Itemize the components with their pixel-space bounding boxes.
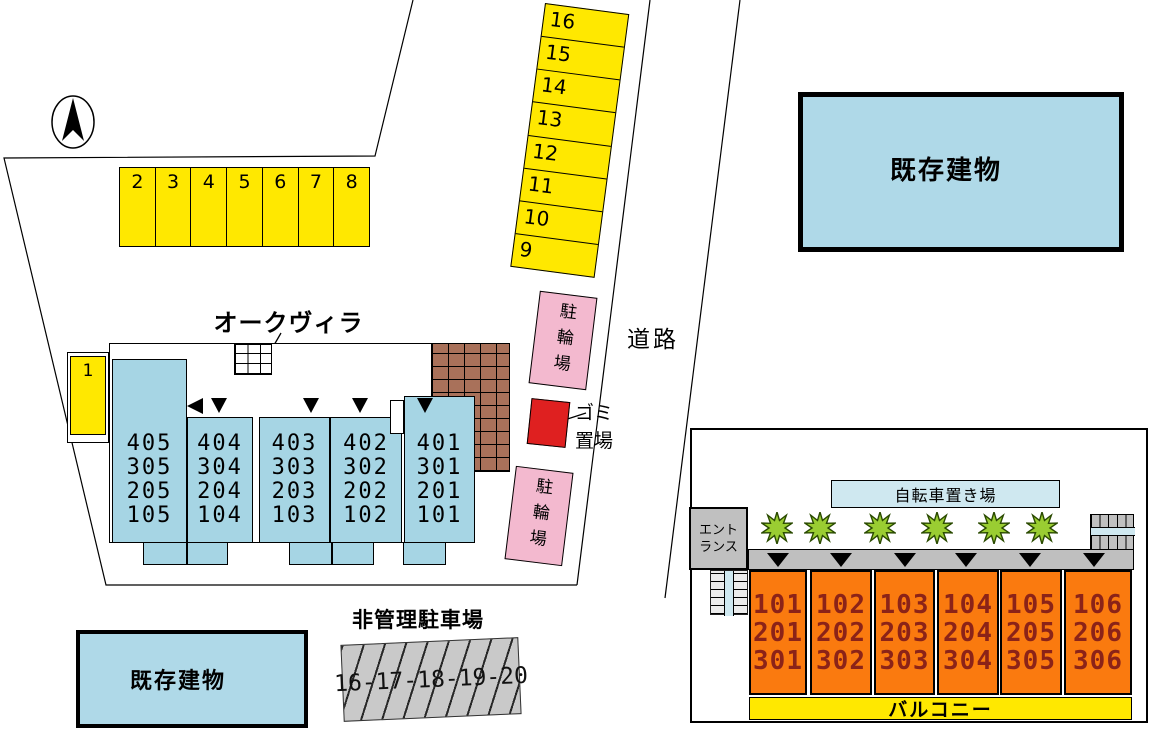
- room-number: 305: [127, 456, 173, 480]
- residence-column-02: 402 302 202 102: [330, 417, 402, 543]
- entrance-box: エント ランス: [689, 507, 748, 570]
- parking-space: 2: [120, 168, 156, 246]
- unit-column-04: 104 204 304: [937, 570, 999, 695]
- unit-number: 204: [943, 619, 993, 647]
- room-number: 404: [197, 432, 243, 456]
- bicycle-parking-bottom: 駐輪場: [504, 466, 573, 566]
- bush-icon: [804, 512, 836, 544]
- room-number: 201: [417, 480, 463, 504]
- unit-number: 306: [1073, 647, 1123, 675]
- unit-column-03: 103 203 303: [874, 570, 935, 695]
- stair-landing: [1091, 527, 1135, 536]
- entrance-arrow-icon: [211, 398, 227, 413]
- entrance-arrow-icon: [352, 398, 368, 413]
- residence-column-04: 404 304 204 104: [187, 417, 253, 543]
- balcony-tab: [187, 542, 228, 565]
- parking-space: 7: [299, 168, 335, 246]
- garbage-area-box: [527, 398, 571, 448]
- wall-notch: [390, 400, 404, 434]
- bush-icon: [978, 512, 1010, 544]
- unit-number: 201: [753, 619, 803, 647]
- balcony-tab: [403, 542, 446, 565]
- room-number: 202: [343, 480, 389, 504]
- residence-column-05: 405 305 205 105: [112, 359, 187, 543]
- bicycle-parking-label: 駐輪場: [546, 300, 580, 380]
- unit-entrance-arrow-icon: [1019, 553, 1041, 567]
- unit-number: 105: [1006, 591, 1056, 619]
- balcony-tab: [143, 542, 187, 565]
- unit-entrance-arrow-icon: [830, 553, 852, 567]
- bush-icon: [761, 512, 793, 544]
- entrance-arrow-icon: [417, 398, 433, 413]
- side-staircase: [1090, 514, 1134, 550]
- walkway-corridor: [748, 549, 1134, 570]
- existing-building-bottom: 既存建物: [76, 630, 308, 728]
- entrance-arrow-left-icon: [187, 398, 203, 414]
- unmanaged-parking-label: 非管理駐車場: [352, 604, 484, 634]
- balcony-strip: バルコニー: [749, 697, 1132, 720]
- parking-space: 1: [70, 356, 106, 435]
- balcony-tab: [289, 542, 332, 565]
- unit-column-05: 105 205 305: [1000, 570, 1062, 695]
- room-number: 402: [343, 432, 389, 456]
- unit-column-01: 101 201 301: [749, 570, 807, 695]
- bicycle-parking-label: 駐輪場: [522, 476, 556, 556]
- balcony-tab: [332, 542, 374, 565]
- bush-icon: [921, 512, 953, 544]
- existing-building-top: 既存建物: [798, 92, 1124, 252]
- bush-icon: [864, 512, 896, 544]
- floor-plan-diagram: 自転車置き場 エント ランス 101 20: [690, 428, 1148, 723]
- room-number: 301: [417, 456, 463, 480]
- room-number: 204: [197, 480, 243, 504]
- parking-row-2-8: 2 3 4 5 6 7 8: [119, 167, 370, 247]
- road-label: 道路: [627, 320, 679, 354]
- entrance-arrow-icon: [303, 398, 319, 413]
- staircase-icon: [234, 344, 272, 375]
- unit-number: 302: [816, 647, 866, 675]
- unit-number: 103: [880, 591, 930, 619]
- site-plan-canvas: 2 3 4 5 6 7 8 16 15 14 13 12 11 10 9 1 オ…: [0, 0, 1158, 740]
- residence-column-01: 401 301 201 101: [404, 396, 475, 543]
- room-number: 205: [127, 480, 173, 504]
- room-number: 103: [272, 504, 318, 528]
- garbage-label-line1: ゴミ: [575, 399, 613, 427]
- unit-number: 206: [1073, 619, 1123, 647]
- unit-number: 303: [880, 647, 930, 675]
- building-title: オークヴィラ: [196, 303, 381, 338]
- balcony-label: バルコニー: [888, 695, 993, 722]
- unit-number: 301: [753, 647, 803, 675]
- unit-entrance-arrow-icon: [1083, 553, 1105, 567]
- unit-entrance-arrow-icon: [894, 553, 916, 567]
- room-number: 302: [343, 456, 389, 480]
- unit-number: 102: [816, 591, 866, 619]
- unit-number: 203: [880, 619, 930, 647]
- bicycle-stand-bar: 自転車置き場: [831, 480, 1060, 508]
- residence-column-03: 403 303 203 103: [259, 417, 330, 543]
- parking-space: 4: [191, 168, 227, 246]
- parking-space: 6: [263, 168, 299, 246]
- unit-entrance-arrow-icon: [955, 553, 977, 567]
- room-number: 105: [127, 504, 173, 528]
- parking-space: 5: [227, 168, 263, 246]
- entrance-label-line1: エント: [691, 522, 746, 539]
- garbage-label-line2: 置場: [575, 427, 613, 455]
- stair-rail: [724, 571, 734, 616]
- parking-space: 3: [156, 168, 192, 246]
- room-number: 304: [197, 456, 243, 480]
- unit-number: 202: [816, 619, 866, 647]
- entrance-staircase: [710, 570, 748, 615]
- bicycle-parking-top: 駐輪場: [529, 291, 598, 390]
- unit-number: 304: [943, 647, 993, 675]
- unit-entrance-arrow-icon: [767, 553, 789, 567]
- bicycle-stand-label: 自転車置き場: [894, 482, 996, 506]
- unit-number: 104: [943, 591, 993, 619]
- unit-number: 305: [1006, 647, 1056, 675]
- room-number: 101: [417, 504, 463, 528]
- room-number: 401: [417, 432, 463, 456]
- entrance-label-line2: ランス: [691, 539, 746, 556]
- unmanaged-parking-area: 16-17-18-19-20: [340, 637, 521, 722]
- unit-number: 106: [1073, 591, 1123, 619]
- room-number: 203: [272, 480, 318, 504]
- unmanaged-parking-numbers: 16-17-18-19-20: [334, 662, 529, 696]
- unit-number: 205: [1006, 619, 1056, 647]
- unit-number: 101: [753, 591, 803, 619]
- bush-icon: [1026, 512, 1058, 544]
- garbage-area-label: ゴミ 置場: [575, 399, 613, 455]
- room-number: 403: [272, 432, 318, 456]
- north-compass-icon: [50, 92, 96, 150]
- unit-column-06: 106 206 306: [1064, 570, 1132, 695]
- room-number: 104: [197, 504, 243, 528]
- room-number: 303: [272, 456, 318, 480]
- room-number: 405: [127, 432, 173, 456]
- room-number: 102: [343, 504, 389, 528]
- parking-space: 8: [334, 168, 369, 246]
- unit-column-02: 102 202 302: [810, 570, 872, 695]
